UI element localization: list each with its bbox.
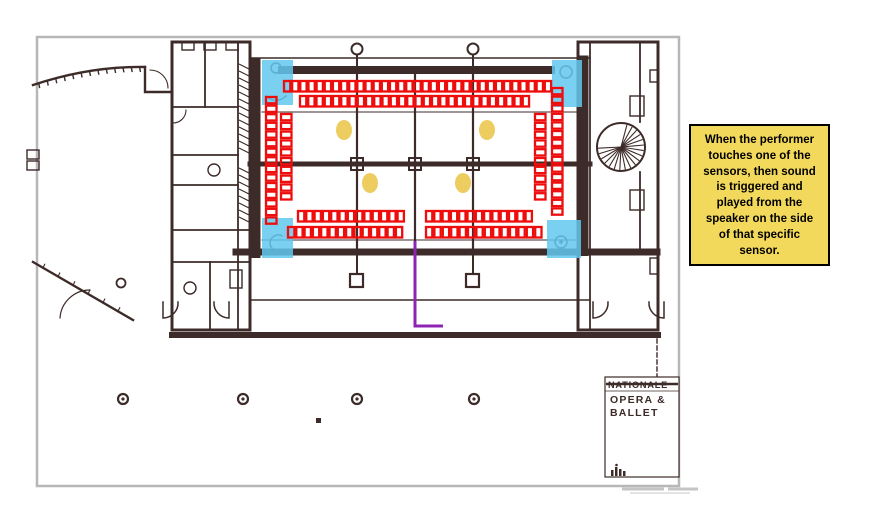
sensor-seat [308,81,314,92]
sensor-seat [424,96,430,107]
sensor-seat [552,174,563,180]
plan-tick [239,71,249,76]
sensor-seat [266,200,277,206]
sensor-seat [373,211,379,222]
plan-tick [239,203,249,208]
small-marker [316,418,321,423]
sensor-seat [509,211,515,222]
sensor-seat [300,96,306,107]
sensor-seat [364,211,370,222]
sensor-seat [552,122,563,128]
sensor-seat [266,131,277,137]
sensor-seat [371,227,377,238]
sensor-seat [476,211,482,222]
sensor-seat [298,211,304,222]
sensor-seat [281,158,292,164]
sensor-seat [527,227,533,238]
title-block-frame [605,377,679,477]
sensor-seat [451,211,457,222]
sensor-seat [414,81,420,92]
sensor-seat [341,81,347,92]
plan-tick [47,81,48,86]
plan-tick [123,67,124,72]
plan-tick [239,113,249,118]
sensor-seat [463,81,469,92]
sensor-seat [266,123,277,129]
sensor-seat [388,227,394,238]
sensor-seat [426,227,432,238]
speaker-bottom-right [547,220,581,258]
sensor-seat [552,191,563,197]
plan-tick [139,67,140,72]
sensor-seat [449,96,455,107]
stage-marker [479,120,495,140]
sensor-seat [440,96,446,107]
sensor-seat [482,96,488,107]
stage-marker [336,120,352,140]
sensor-seat [399,96,405,107]
sensor-seat [381,211,387,222]
sensor-seat [331,211,337,222]
sensor-seat [340,211,346,222]
plan-tick [239,175,249,180]
sensor-seat [502,227,508,238]
sensor-seat [535,227,541,238]
sensor-seat [374,96,380,107]
note-box: When the performertouches one of thesens… [689,124,830,266]
sensor-seat [459,211,465,222]
door-pivot [117,279,126,288]
plan-dots [121,240,562,423]
sensor-seat [517,211,523,222]
sensor-seat [305,227,311,238]
note-line: sensor. [693,244,826,260]
sensor-seat [398,81,404,92]
sensor-seat [465,96,471,107]
sensor-seat [266,209,277,215]
column [352,44,363,55]
sensor-seat [398,211,404,222]
sensor-seat [552,140,563,146]
sensor-seat [266,149,277,155]
plan-tick [239,78,249,83]
sensor-seat [520,81,526,92]
column-dot [241,397,244,400]
plan-tick [239,141,249,146]
plan-tick [239,134,249,139]
plan-tick [239,210,249,215]
sensor-seat [552,157,563,163]
sensor-seat [432,96,438,107]
sensor-seat [313,227,319,238]
sensor-seat [266,166,277,172]
column-dot [472,397,475,400]
plan-tick [98,70,99,75]
sensor-seat [281,132,292,138]
sensor-seat [423,81,429,92]
sensor-seat [439,81,445,92]
plan-tick [239,127,249,132]
sensor-seat [363,227,369,238]
sensor-seat [296,227,302,238]
sensor-seat [535,114,546,120]
plan-tick [239,148,249,153]
door-arc [173,110,186,123]
plan-tick [131,67,132,72]
sensor-seat [552,148,563,154]
sensor-seat [552,208,563,214]
title-block: NATIONALE OPERA & BALLET [605,377,679,477]
sensor-seat [281,140,292,146]
plan-tick [239,99,249,104]
sensor-seat [266,157,277,163]
sensor-seat [552,200,563,206]
stage-marker [455,173,471,193]
sensor-seat [333,96,339,107]
plan-tick [90,71,91,76]
sensor-seat [382,81,388,92]
sensor-seat [390,81,396,92]
sensor-seat [330,227,336,238]
sensor-seat [552,105,563,111]
sensor-seat [535,167,546,173]
sensor-seat [416,96,422,107]
door-arc [150,70,168,88]
sensor-seat [281,149,292,155]
sensor-seat [434,211,440,222]
plan-tick [239,217,249,222]
sensor-seat [341,96,347,107]
plan-tick [239,182,249,187]
plan-tick [56,78,57,83]
sensor-seat [460,227,466,238]
sensor-seat [431,81,437,92]
sensor-seat [552,131,563,137]
plan-tick [239,168,249,173]
sensor-seat [281,114,292,120]
sensor-seat [407,96,413,107]
plan-tick [239,196,249,201]
sensor-seat [426,211,432,222]
sensor-seat [496,81,502,92]
wc-fixture [208,164,220,176]
sensor-seat [383,96,389,107]
screenshot-root: NATIONALE OPERA & BALLET When the perfor… [0,0,890,526]
plan-tick [106,69,107,74]
sensor-seat [501,211,507,222]
plan-tick [239,106,249,111]
sensor-seat [266,114,277,120]
canopy-curve [33,67,145,85]
sensor-seat [281,176,292,182]
sensor-seat [552,114,563,120]
note-line: is triggered and [693,180,826,196]
note-line: sensors, then sound [693,165,826,181]
column-dot [121,397,124,400]
sensor-seat [317,96,323,107]
sensor-seat [315,211,321,222]
sensor-seat [457,96,463,107]
sensor-seat [506,96,512,107]
sensor-seat [535,158,546,164]
sensor-seat [451,227,457,238]
sensor-seat [321,227,327,238]
sensor-seat [349,81,355,92]
sensor-seat [323,211,329,222]
sensor-seat [535,140,546,146]
note-line: touches one of the [693,149,826,165]
sensor-seat [358,96,364,107]
door-arc [60,290,90,318]
plan-tick [73,74,74,79]
door-arc [593,302,608,318]
sensor-seat [518,227,524,238]
plan-tick [115,68,116,73]
sensor-seat [346,227,352,238]
sensor-seat [317,81,323,92]
note-line: When the performer [693,133,826,149]
sensor-seat [366,81,372,92]
sensor-seat [348,211,354,222]
plan-tick [39,83,40,88]
plan-tick [239,85,249,90]
sensor-seat [535,184,546,190]
plan-tick [239,92,249,97]
sensor-seat [396,227,402,238]
sensor-seat [266,140,277,146]
sensor-seat [545,81,551,92]
sensor-seat [526,211,532,222]
sensor-seat [529,81,535,92]
door-arc [214,302,229,318]
sensor-seat [266,192,277,198]
sensor-seat [468,211,474,222]
sensor-seat [512,81,518,92]
sensor-seat [476,227,482,238]
sensor-seat [535,132,546,138]
sensor-seat [552,183,563,189]
sensor-seat [473,96,479,107]
sensor-seat [281,193,292,199]
illegible-caption [622,489,698,493]
sensor-seat [292,81,298,92]
sensor-seat [535,149,546,155]
sensor-seat [391,96,397,107]
sensor-seat [308,96,314,107]
sensor-seat [537,81,543,92]
speaker-top-right [552,60,582,107]
title-block-line2: OPERA & [610,394,666,406]
plan-tick [64,76,65,81]
sensor-seat [455,81,461,92]
sensor-seat [468,227,474,238]
sensor-seat [492,211,498,222]
note-line: speaker on the side [693,212,826,228]
sensor-seat [490,96,496,107]
sensor-seat [510,227,516,238]
plan-tick [239,120,249,125]
sensor-seat [306,211,312,222]
sensor-seat [498,96,504,107]
sensor-seat [488,81,494,92]
sensor-seat [281,123,292,129]
sensor-seat [523,96,529,107]
sensor-seat [389,211,395,222]
plan-tick [81,72,82,77]
sensor-seat [480,81,486,92]
sensor-seat [266,174,277,180]
sensor-seat [379,227,385,238]
sensor-seat [325,81,331,92]
stage-marker [362,173,378,193]
sensor-seat [266,183,277,189]
sensor-seat [443,211,449,222]
plan-tick [239,64,249,69]
note-line: played from the [693,196,826,212]
sensor-seat [485,227,491,238]
sensor-seat [356,211,362,222]
sensor-seat [300,81,306,92]
column-dot [355,397,358,400]
sensor-seat [281,184,292,190]
sensor-seat [325,96,331,107]
sensor-seat [357,81,363,92]
wc-fixture [184,282,196,294]
sensor-seat [484,211,490,222]
sensor-seat [552,165,563,171]
sensor-seat [374,81,380,92]
plan-tick [239,189,249,194]
sensor-seat [333,81,339,92]
sensor-seat [471,81,477,92]
note-line: of that specific [693,228,826,244]
sensor-seat [535,193,546,199]
sensor-seat [447,81,453,92]
sensor-seat [406,81,412,92]
sensor-seat [443,227,449,238]
sensor-seat [493,227,499,238]
sensor-seat [504,81,510,92]
door-arc [649,302,664,318]
sensor-seat [281,167,292,173]
title-block-line3: BALLET [610,407,659,419]
column [468,44,479,55]
sensor-seat [338,227,344,238]
sensor-seat [266,106,277,112]
sensor-seat [434,227,440,238]
sensor-seat [535,176,546,182]
sensor-seat [535,123,546,129]
sensor-seat [515,96,521,107]
sensor-seat [366,96,372,107]
sensor-seat [350,96,356,107]
